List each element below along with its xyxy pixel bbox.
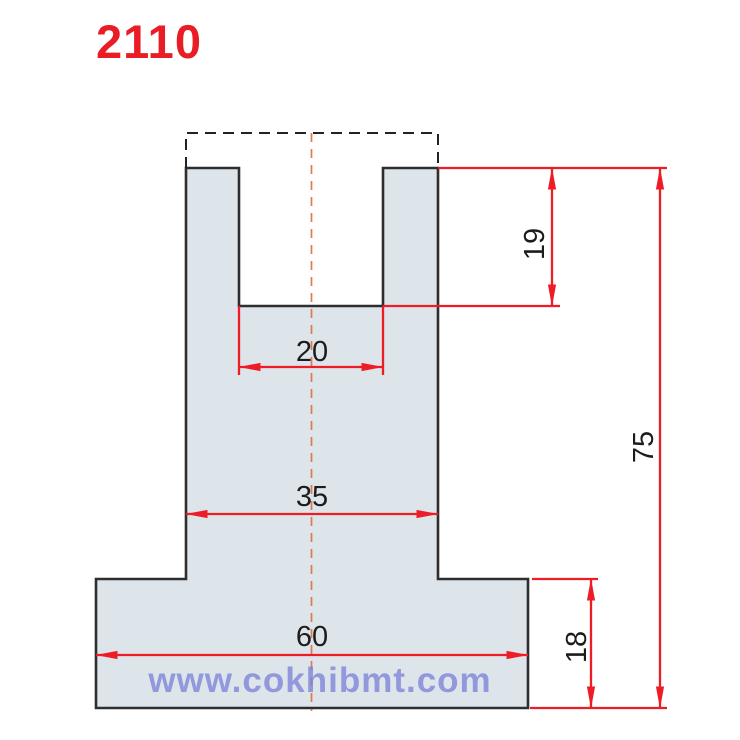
dim-label-base-height: 18	[561, 631, 593, 663]
dim-label-slot-width: 20	[296, 336, 328, 368]
die-profile-drawing: 20 35 60 19 75 18	[0, 0, 740, 740]
dim-label-slot-depth: 19	[519, 228, 551, 260]
dim-label-base-width: 60	[296, 621, 328, 653]
drawing-canvas: 2110	[0, 0, 740, 740]
dim-label-shank-width: 35	[296, 481, 328, 513]
watermark-text: www.cokhibmt.com	[104, 661, 536, 701]
dim-label-overall-height: 75	[628, 431, 660, 463]
